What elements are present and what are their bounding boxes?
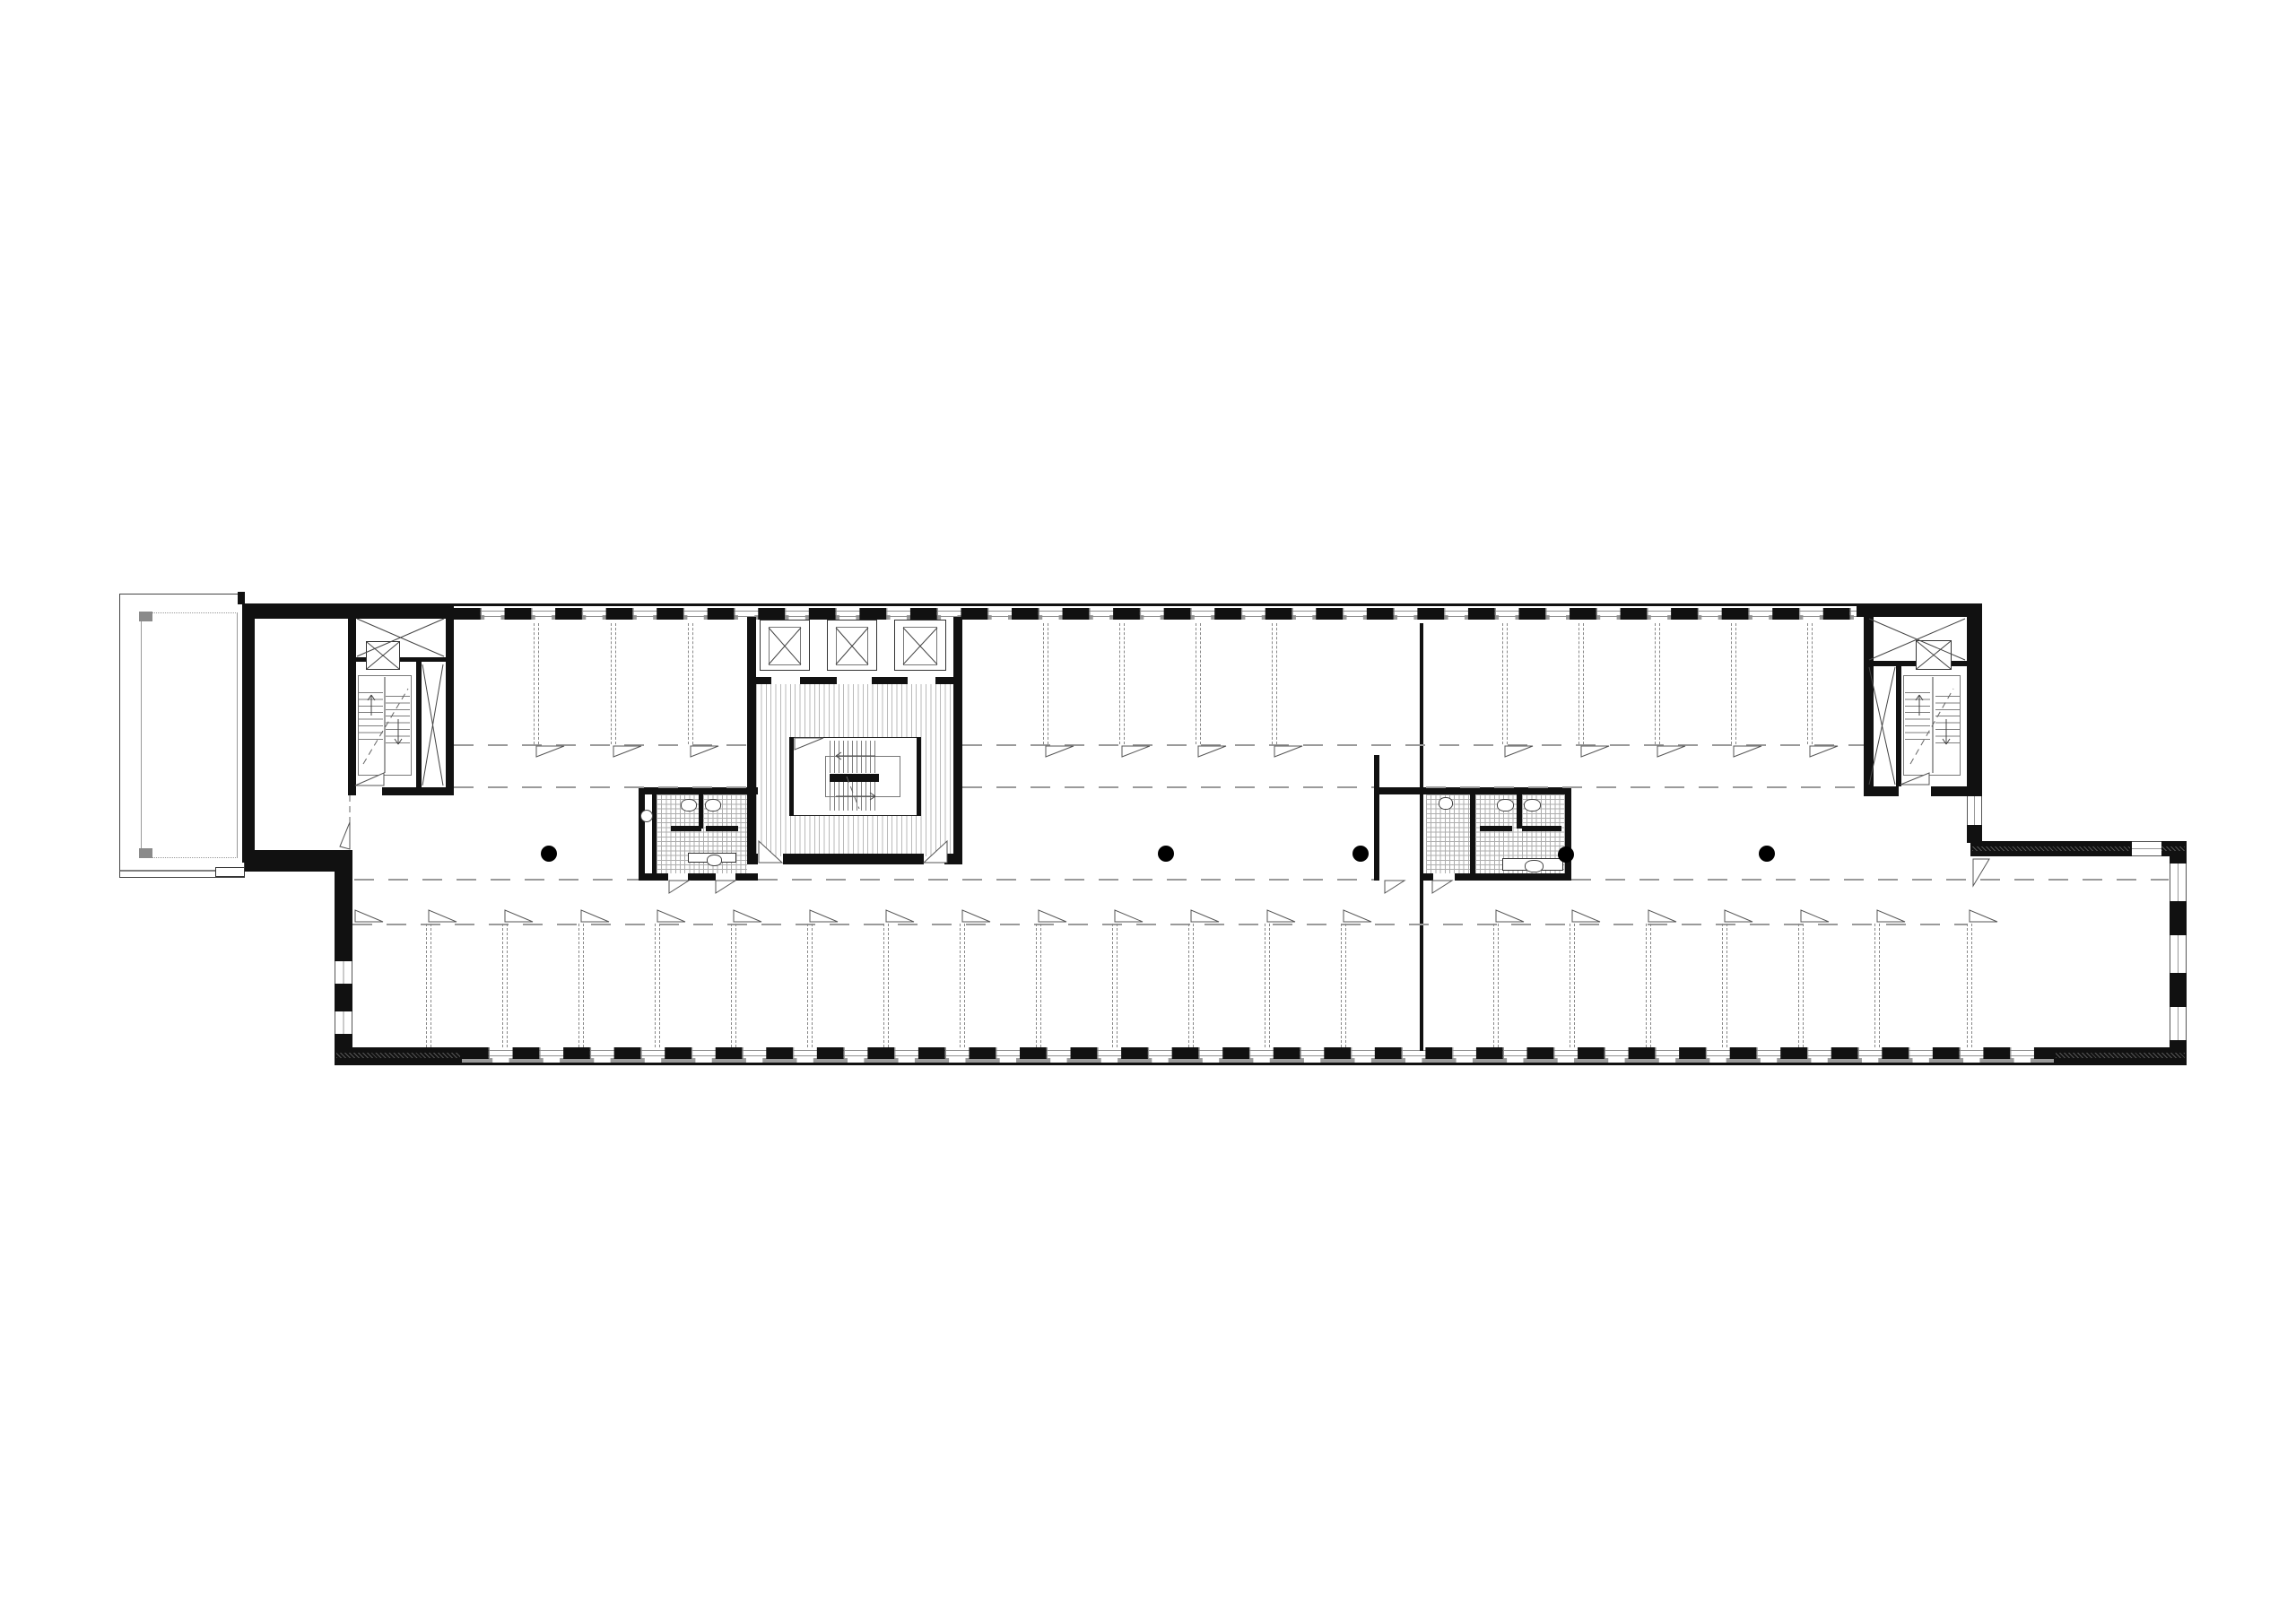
core-l-wall-s-a xyxy=(348,787,355,795)
atrium-stair-treads-up xyxy=(830,741,879,773)
door-flag-lower xyxy=(734,910,761,922)
door-flag-lower xyxy=(429,910,457,922)
ext-east-pier-1 xyxy=(2170,901,2187,935)
core-c-wall-s-a xyxy=(747,854,758,864)
door-flag-wc-left-1 xyxy=(669,881,689,893)
toilet xyxy=(707,855,722,866)
corridor-south-line xyxy=(1571,879,2169,881)
south-insulation-east xyxy=(2056,1053,2185,1058)
room-partition-upper xyxy=(1731,623,1736,744)
structural-column xyxy=(1759,846,1775,862)
ext-top-insulation xyxy=(1972,846,2130,851)
wc-r-wall-n xyxy=(1374,787,1571,794)
elevator-cab-2 xyxy=(836,627,868,665)
room-partition-lower xyxy=(1874,924,1880,1047)
door-flag-lower xyxy=(1725,910,1752,922)
ext-top-insulation-b xyxy=(2161,846,2185,851)
room-front-line-north xyxy=(454,744,747,746)
wc-r-wall-e xyxy=(1565,787,1571,881)
atrium-stair-landing xyxy=(830,774,879,782)
wc-l-wall-n xyxy=(639,787,758,794)
door-flag-lower xyxy=(1496,910,1524,922)
stair-left-treads-b xyxy=(386,696,410,746)
structural-column xyxy=(1158,846,1174,862)
door-flag-upper xyxy=(1274,746,1302,757)
wc-r-divider xyxy=(1470,794,1475,873)
door-flag-lower xyxy=(1267,910,1295,922)
door-flag-upper xyxy=(691,746,718,757)
terrace-frame xyxy=(141,612,238,858)
door-flag-corridor-west xyxy=(340,822,350,849)
core-c-wall-s-c xyxy=(944,854,962,864)
room-partition-lower xyxy=(426,924,431,1047)
core-c-doorwall-d xyxy=(935,677,953,684)
room-partition-lower xyxy=(960,924,965,1047)
room-partition-upper xyxy=(1043,623,1048,744)
corridor-south-line xyxy=(758,879,1374,881)
door-flag-upper xyxy=(536,746,564,757)
room-partition-upper xyxy=(1578,623,1584,744)
core-r-wall-w xyxy=(1864,617,1874,796)
room-partition-upper xyxy=(688,623,693,744)
room-partition-lower xyxy=(731,924,736,1047)
door-flag-upper xyxy=(1581,746,1609,757)
door-flag-lower xyxy=(1877,910,1905,922)
room-partition-lower xyxy=(578,924,584,1047)
atrium-void-bar-west xyxy=(789,737,794,816)
toilet xyxy=(1497,799,1514,811)
core-l-wall-w xyxy=(348,617,356,795)
door-flag-upper xyxy=(613,746,641,757)
floor-plan xyxy=(0,0,2296,1623)
door-flag-wc-right-1 xyxy=(1385,881,1405,893)
door-flag-lower xyxy=(355,910,383,922)
room-partition-upper xyxy=(1196,623,1201,744)
wc-l-wall-s-b xyxy=(688,873,716,881)
core-r-div-v xyxy=(1896,666,1901,786)
window-ext-north xyxy=(2132,841,2161,856)
detail-line xyxy=(422,664,443,785)
door-flag-lower xyxy=(1344,910,1371,922)
toilet xyxy=(681,799,697,811)
door-flag-upper xyxy=(1657,746,1685,757)
door-flag-upper xyxy=(1810,746,1838,757)
door-flag-lower xyxy=(1115,910,1143,922)
door-flag-lower xyxy=(1039,910,1066,922)
window-west-2 xyxy=(335,1011,352,1034)
sink-basin xyxy=(640,810,653,822)
terrace-post xyxy=(139,848,152,858)
wc-r-partition xyxy=(1517,794,1522,829)
door-flag-lower xyxy=(886,910,914,922)
room-front-line-north xyxy=(962,744,1864,746)
core-c-doorwall-a xyxy=(756,677,771,684)
door-flag-lower xyxy=(505,910,533,922)
room-partition-upper xyxy=(611,623,616,744)
room-partition-lower xyxy=(807,924,813,1047)
terrace-step xyxy=(215,867,245,877)
stair-right-treads-a xyxy=(1905,692,1930,744)
room-partition-upper xyxy=(534,623,539,744)
corridor-south-line xyxy=(354,879,639,881)
room-partition-lower xyxy=(1798,924,1804,1047)
door-flag-lower xyxy=(1648,910,1676,922)
corridor-north-line xyxy=(1426,786,1864,788)
corridor-north-line xyxy=(454,786,747,788)
core-c-doorwall-b xyxy=(800,677,837,684)
atrium-stair-treads-down xyxy=(830,782,879,811)
ext-east-pier-2 xyxy=(2170,973,2187,1007)
room-partition-upper xyxy=(1272,623,1277,744)
wall-east-stub xyxy=(1967,825,1982,843)
room-partition-lower xyxy=(1646,924,1651,1047)
elevator-cab-3 xyxy=(903,627,937,665)
wall-south-line xyxy=(335,1063,2187,1065)
core-c-wall-e xyxy=(953,617,962,864)
room-partition-lower xyxy=(883,924,889,1047)
structural-column xyxy=(1558,846,1574,863)
toilet xyxy=(705,799,721,811)
window-west-1 xyxy=(335,961,352,984)
ext-east-corner-top xyxy=(2170,841,2187,864)
window-east-upper xyxy=(1967,796,1982,825)
room-partition-upper xyxy=(1502,623,1508,744)
door-flag-lower xyxy=(1572,910,1600,922)
door-flag-upper xyxy=(1046,746,1074,757)
facade-north-windows xyxy=(454,603,1857,623)
door-flag-lower xyxy=(657,910,685,922)
wc-l-divider xyxy=(652,794,657,873)
room-partition-lower xyxy=(502,924,508,1047)
south-insulation-west xyxy=(336,1053,460,1058)
door-flag-lower xyxy=(1801,910,1829,922)
door-flag-upper xyxy=(1505,746,1533,757)
door-flag-upper xyxy=(1734,746,1761,757)
room-partition-lower xyxy=(655,924,660,1047)
wall-west-band-b xyxy=(335,984,352,1011)
wall-southwest xyxy=(242,850,352,863)
room-partition-upper xyxy=(1655,623,1660,744)
door-flag-upper xyxy=(1198,746,1226,757)
door-flag-extension xyxy=(1973,859,1989,886)
wc-r-vestibule-wall xyxy=(1374,755,1379,881)
stair-right-treads-b xyxy=(1935,696,1961,746)
core-l-wall-s-b xyxy=(382,787,454,795)
wc-r-shelf-a xyxy=(1480,826,1512,831)
room-partition-upper xyxy=(1119,623,1125,744)
elevator-machine-left xyxy=(366,641,400,670)
door-flag-lower xyxy=(1191,910,1219,922)
core-l-wall-e xyxy=(446,617,454,795)
elevator-cab-1 xyxy=(769,627,801,665)
toilet xyxy=(1439,797,1453,810)
wc-r-shelf-b xyxy=(1522,826,1561,831)
wall-west xyxy=(242,603,255,850)
door-flag-upper xyxy=(1122,746,1150,757)
room-partition-lower xyxy=(1570,924,1575,1047)
door-flag-lower xyxy=(810,910,838,922)
wall-west-band-c xyxy=(335,1034,352,1047)
structural-column xyxy=(541,846,557,862)
toilet xyxy=(1524,799,1541,811)
window-ext-east-1 xyxy=(2170,864,2187,901)
wall-east-upper xyxy=(1967,603,1982,796)
wc-l-partition xyxy=(699,794,703,829)
core-r-wall-s-b xyxy=(1931,786,1982,796)
terrace-corner-cap xyxy=(238,592,245,604)
core-c-doorwall-c xyxy=(872,677,908,684)
room-partition-upper xyxy=(1807,623,1813,744)
wc-r-wall-s-b xyxy=(1455,873,1571,881)
structural-column xyxy=(1352,846,1369,862)
window-ext-east-2 xyxy=(2170,935,2187,973)
core-l-div-v xyxy=(416,662,422,787)
wc-l-wall-w xyxy=(639,787,645,881)
window-ext-east-3 xyxy=(2170,1007,2187,1040)
corridor-north-line xyxy=(962,786,1374,788)
wc-l-shelf-b xyxy=(706,826,738,831)
atrium-void-bar-east xyxy=(917,737,921,816)
door-flag-lower xyxy=(1970,910,1997,922)
wall-north-east xyxy=(1857,603,1967,617)
room-partition-lower xyxy=(1967,924,1972,1047)
wc-l-wall-s-c xyxy=(735,873,758,881)
room-partition-lower xyxy=(1265,924,1270,1047)
room-partition-lower xyxy=(1722,924,1727,1047)
core-r-wall-s-a xyxy=(1864,786,1899,796)
core-c-wall-w xyxy=(747,617,756,864)
section-wall xyxy=(1420,623,1423,1051)
wall-west-band-a xyxy=(335,863,352,961)
room-partition-lower xyxy=(1188,924,1194,1047)
elevator-machine-right xyxy=(1916,640,1952,670)
wc-l-shelf-a xyxy=(671,826,701,831)
door-flag-lower xyxy=(581,910,609,922)
room-partition-lower xyxy=(1112,924,1118,1047)
core-c-wall-s-b xyxy=(783,854,924,864)
room-partition-lower xyxy=(1493,924,1499,1047)
wall-southwest-inner xyxy=(245,863,342,872)
door-flag-wc-left-2 xyxy=(716,881,735,893)
stair-left-treads-a xyxy=(359,692,383,744)
door-flag-wc-right-2 xyxy=(1432,881,1452,893)
door-flag-lower xyxy=(962,910,990,922)
sink-basin xyxy=(1525,860,1544,872)
room-partition-lower xyxy=(1341,924,1346,1047)
detail-line xyxy=(422,664,443,785)
room-partition-lower xyxy=(1036,924,1041,1047)
plan-linework xyxy=(0,0,2296,1623)
terrace-post xyxy=(139,612,152,621)
